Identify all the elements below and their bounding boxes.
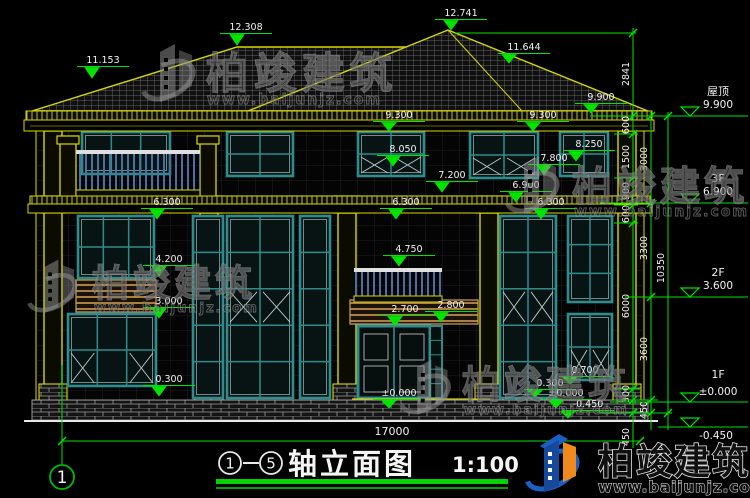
level-value: 9.900 xyxy=(703,99,733,111)
level-minus450: -0.450 xyxy=(658,418,748,442)
level-label: 屋顶 xyxy=(707,85,729,98)
elevation-marker-value: 8.050 xyxy=(389,144,416,155)
title-axis-from: 1 xyxy=(225,455,235,473)
elevation-marker-triangle xyxy=(230,35,244,46)
logo-window xyxy=(548,468,552,472)
elevation-marker: 11.153 xyxy=(77,55,129,78)
watermark-url: www.baijunjz.com xyxy=(464,403,629,418)
axis-bubble-label: 1 xyxy=(57,468,68,488)
level-1f: 1F ±0.000 xyxy=(658,368,748,402)
level-roof: 屋顶 9.900 xyxy=(658,85,748,116)
elevation-marker-value: 2.800 xyxy=(437,300,464,311)
level-2f: 2F 3.600 xyxy=(658,266,748,297)
dim-chain-label: 3600 xyxy=(639,337,650,361)
level-label: 2F xyxy=(711,266,724,279)
elevation-marker-triangle xyxy=(444,21,458,31)
railing-top-rail xyxy=(76,150,200,154)
elevation-marker-value: 6.300 xyxy=(153,197,180,208)
balcony-post-capital xyxy=(57,136,79,144)
eaves-tiles xyxy=(26,111,652,120)
logo-window xyxy=(548,476,552,480)
brand-logo: 柏竣建筑 www.baijunjz.com xyxy=(521,434,750,497)
title-scale: 1:100 xyxy=(452,453,519,477)
railing-balusters xyxy=(354,272,442,296)
elevation-marker-value: 2.700 xyxy=(391,304,418,315)
elevation-marker-value: 6.300 xyxy=(392,197,419,208)
watermark-brand: 柏竣建筑 xyxy=(462,363,630,407)
benchmark-icon xyxy=(681,393,699,402)
window xyxy=(227,132,293,176)
railing-sill xyxy=(354,296,442,302)
balcony-post xyxy=(200,142,216,198)
elevation-marker: 12.741 xyxy=(435,8,487,30)
level-value: 3.600 xyxy=(703,280,733,292)
dim-chain-label: 600 xyxy=(621,116,632,134)
elevation-marker-value: 8.250 xyxy=(575,139,602,150)
elevation-marker-value: 9.300 xyxy=(529,110,556,121)
elevation-marker-value: 12.308 xyxy=(229,22,262,33)
level-label: 1F xyxy=(711,368,724,381)
railing-balusters xyxy=(76,154,200,190)
dim-chain-label: 10350 xyxy=(656,253,667,283)
benchmark-icon xyxy=(681,288,699,297)
logo-slab xyxy=(563,442,576,482)
title-name: 轴立面图 xyxy=(288,447,416,481)
right-floor-levels: 屋顶 9.900 3F 6.900 2F 3.600 1F ±0.000 -0.… xyxy=(658,85,748,442)
elevation-marker-value: 4.750 xyxy=(395,244,422,255)
elevation-marker-value: 7.200 xyxy=(438,170,465,181)
watermark-url: www.baijunjz.com xyxy=(207,92,382,108)
elevation-marker-value: 12.741 xyxy=(444,8,477,19)
railing-sill xyxy=(76,190,200,196)
dim-chain: 10350 xyxy=(656,112,672,430)
window xyxy=(568,216,612,302)
brand-logo-icon xyxy=(521,434,584,497)
railing-top-rail xyxy=(354,268,442,272)
cad-elevation-drawing: 11.15312.30812.74111.6449.9009.3009.3008… xyxy=(0,0,750,498)
logo-window xyxy=(548,460,552,464)
brand-logo-text: 柏竣建筑 xyxy=(598,442,750,483)
watermark-url: www.baijunjz.com xyxy=(574,204,749,220)
logo-tower xyxy=(544,440,559,492)
window xyxy=(68,314,156,386)
brand-logo-url: www.baijunjz.com xyxy=(598,478,750,496)
elevation-marker: 12.308 xyxy=(220,22,272,45)
elevation-marker-value: ±0.000 xyxy=(381,388,416,399)
balcony-post-capital xyxy=(197,136,219,144)
benchmark-icon xyxy=(681,418,699,427)
elevation-marker-value: 0.300 xyxy=(155,374,182,385)
level-value: -0.450 xyxy=(699,430,733,442)
dim-chain-label: 450 xyxy=(639,401,650,419)
window-frame xyxy=(300,216,330,398)
elevation-marker-value: 9.900 xyxy=(587,92,614,103)
watermark-brand: 柏竣建筑 xyxy=(92,262,256,305)
dim-chain-label: 2841 xyxy=(621,62,632,86)
drawing-title: 1 5 轴立面图 1:100 xyxy=(216,447,519,489)
logo-window xyxy=(548,452,552,456)
watermark-url: www.baijunjz.com xyxy=(94,301,259,316)
overall-dim-text: 17000 xyxy=(375,425,410,438)
level-value: ±0.000 xyxy=(699,386,738,398)
title-underline-thin xyxy=(216,487,508,489)
title-underline xyxy=(216,479,508,484)
dim-chain-label: 3300 xyxy=(639,236,650,260)
window xyxy=(300,216,330,398)
elevation-marker-value: 7.800 xyxy=(540,153,567,164)
elevation-svg: 11.15312.30812.74111.6449.9009.3009.3008… xyxy=(0,0,750,498)
watermark-brand: 柏竣建筑 xyxy=(206,49,398,98)
elevation-marker-value: 11.153 xyxy=(86,55,119,66)
elevation-marker-value: 11.644 xyxy=(507,42,540,53)
benchmark-icon xyxy=(681,107,699,116)
balcony-post xyxy=(60,142,76,198)
dim-chain-label: 6000 xyxy=(621,294,632,318)
elevation-marker-value: 9.300 xyxy=(385,110,412,121)
elevation-marker-triangle xyxy=(85,68,99,79)
title-axis-to: 5 xyxy=(266,455,276,473)
